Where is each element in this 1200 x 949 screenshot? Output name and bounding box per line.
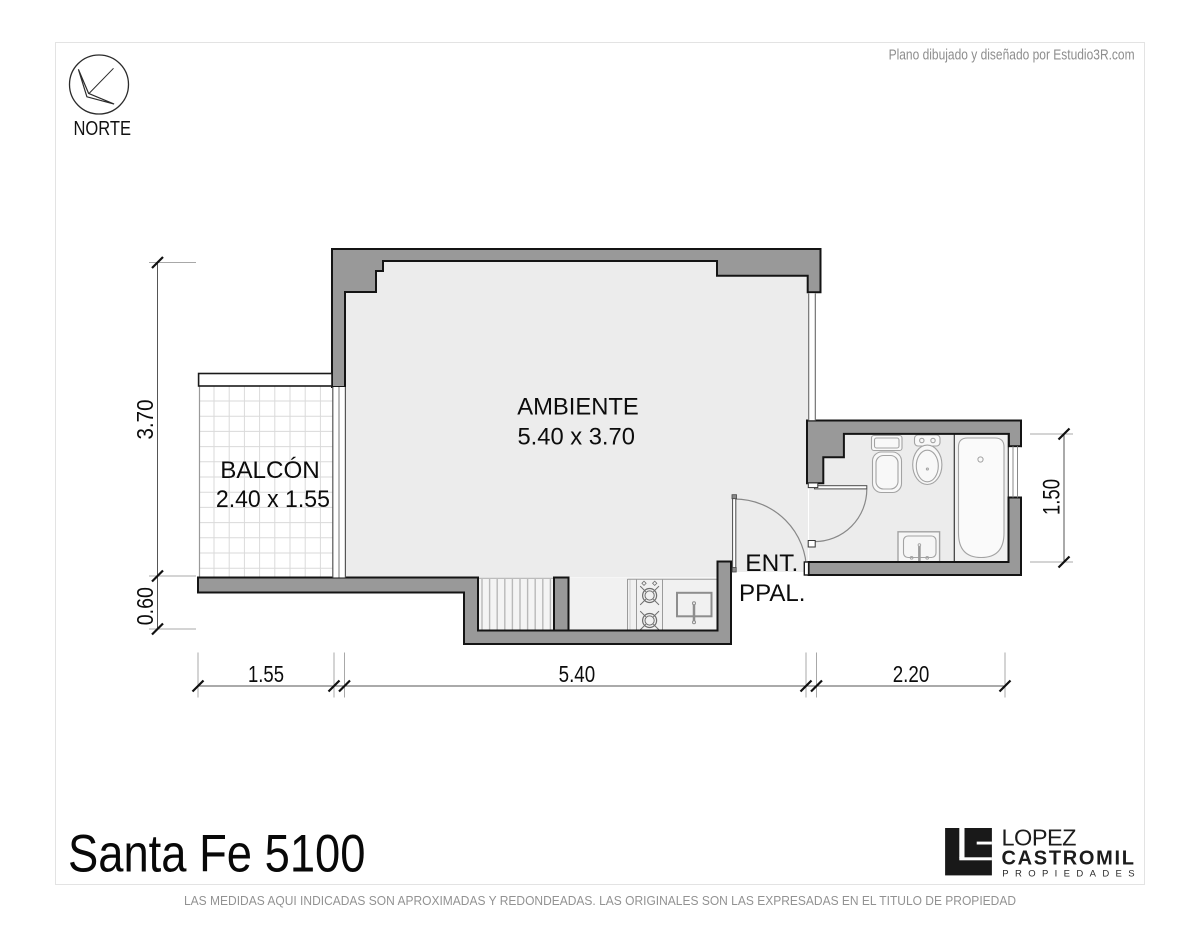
svg-text:5.40 x 3.70: 5.40 x 3.70 [517,424,635,451]
svg-text:3.70: 3.70 [132,400,158,440]
svg-text:Santa Fe 5100: Santa Fe 5100 [68,825,366,884]
svg-text:5.40: 5.40 [559,661,596,687]
svg-text:1.55: 1.55 [248,661,284,687]
svg-text:Plano dibujado y diseñado por: Plano dibujado y diseñado por Estudio3R.… [889,48,1135,64]
svg-text:1.50: 1.50 [1039,479,1066,515]
svg-text:BALCÓN: BALCÓN [220,457,320,484]
svg-text:2.20: 2.20 [893,661,930,687]
svg-text:LAS MEDIDAS AQUI INDICADAS SON: LAS MEDIDAS AQUI INDICADAS SON APROXIMAD… [184,893,1016,908]
svg-text:PPAL.: PPAL. [739,580,806,607]
svg-text:AMBIENTE: AMBIENTE [517,394,639,421]
svg-text:CASTROMIL: CASTROMIL [1002,848,1135,870]
svg-text:0.60: 0.60 [132,587,158,625]
svg-text:PROPIEDADES: PROPIEDADES [1002,869,1134,880]
svg-text:ENT.: ENT. [745,550,798,577]
svg-text:2.40 x 1.55: 2.40 x 1.55 [216,486,330,513]
svg-text:NORTE: NORTE [74,117,132,140]
